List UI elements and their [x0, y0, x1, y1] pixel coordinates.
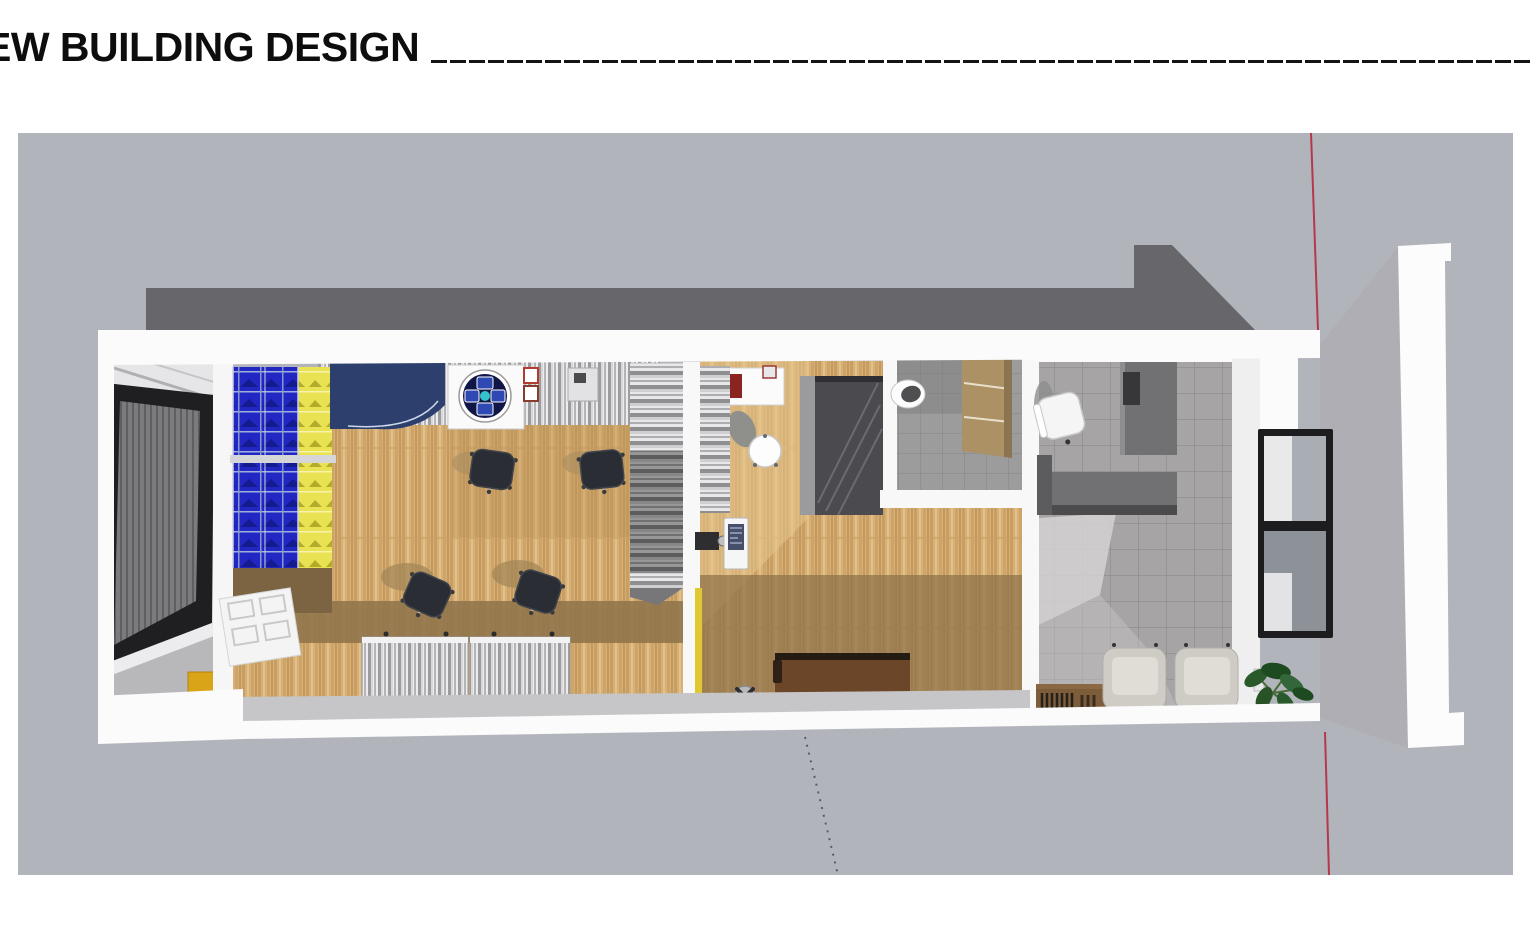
red-crate: [729, 374, 742, 398]
window: [1258, 429, 1333, 638]
toilet: [891, 380, 925, 408]
toilet-bottom-wall: [880, 490, 1035, 508]
left-wall: [98, 330, 114, 725]
lounge-armchair: [1175, 643, 1238, 710]
toilet-left-wall: [883, 340, 897, 505]
printer-unit: [568, 368, 598, 401]
small-sign: [763, 366, 776, 378]
page-title: EW BUILDING DESIGN: [0, 24, 419, 71]
title-dashed-rule: [431, 60, 1530, 63]
floorplan-render-canvas: [18, 133, 1513, 875]
bottom-wall-left: [98, 689, 243, 744]
dial-machine: [448, 365, 524, 429]
stair-flight-left-shade: [630, 451, 683, 573]
floorplan-svg: [18, 133, 1513, 875]
interior-staircase: [800, 376, 883, 515]
workshop-room: [102, 345, 683, 725]
yellow-storage-rack: [298, 367, 332, 568]
paneled-door: [219, 588, 301, 666]
metal-cabinet: [362, 632, 468, 706]
toilet-room: [880, 340, 1035, 508]
bottle: [773, 660, 782, 683]
stair-flight-right: [700, 366, 730, 513]
wall-cabinet: [1123, 372, 1140, 405]
wall-shelf-unit: [962, 350, 1012, 458]
round-table: [749, 434, 781, 467]
yellow-door-strip: [695, 588, 702, 695]
lounge-armchair: [1103, 643, 1166, 710]
rack-cross-beam: [230, 455, 336, 463]
metal-cabinet: [470, 632, 570, 706]
white-desk: [727, 366, 784, 405]
meter-unit: [724, 518, 748, 569]
